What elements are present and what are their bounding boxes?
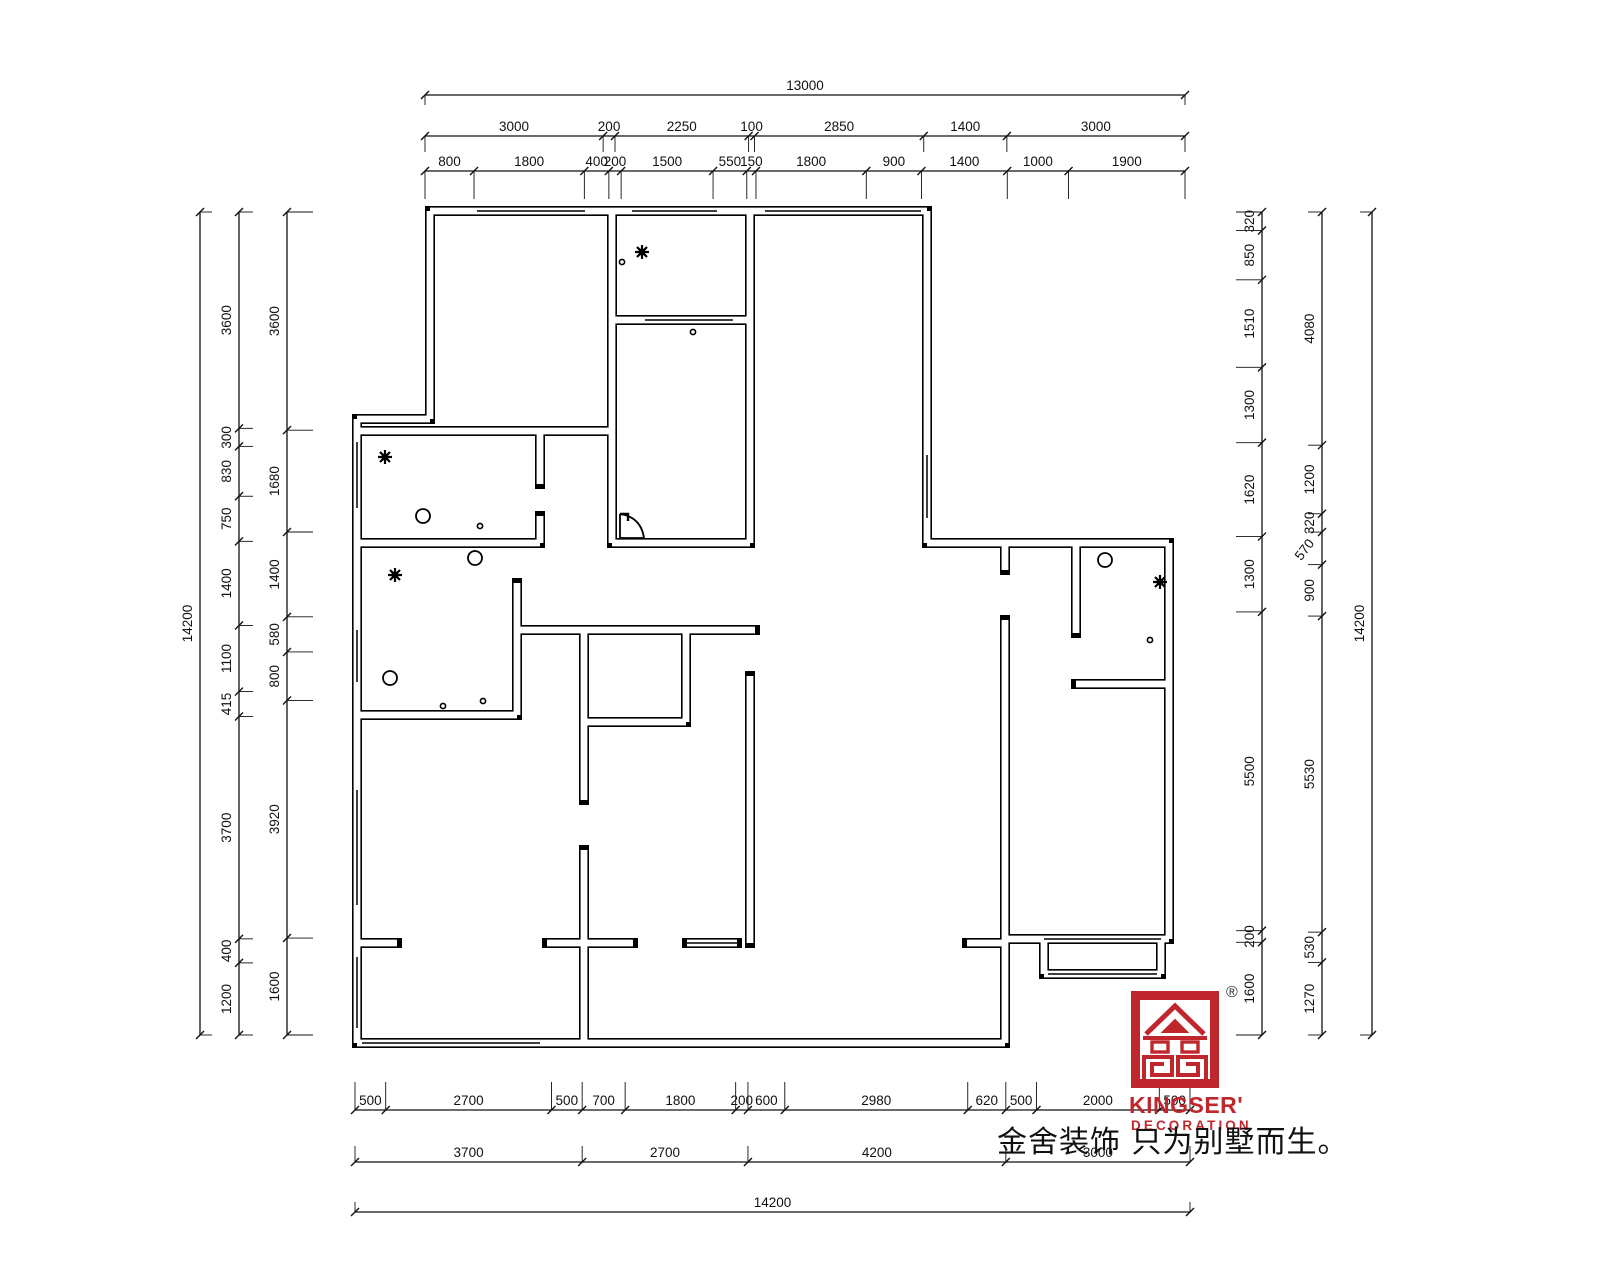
floorplan-sheet: 1300030002002250100285014003000800180040… [0, 0, 1600, 1280]
dim-label: 3600 [219, 305, 234, 335]
dim-label: 1600 [267, 971, 282, 1001]
dim-label: 100 [740, 119, 763, 134]
dim-label: 1300 [1242, 390, 1257, 420]
dim-label: 200 [598, 119, 621, 134]
dim-label: 700 [592, 1093, 615, 1108]
dim-label: 320 [1302, 512, 1317, 535]
logo-brand-text: KINGSER' [1129, 1092, 1243, 1118]
dim-label: 1800 [796, 154, 826, 169]
dim-label: 2850 [824, 119, 854, 134]
corner-shower-icon [620, 514, 644, 538]
dim-label: 1270 [1302, 984, 1317, 1014]
dim-label: 415 [219, 693, 234, 716]
dim-label: 1900 [1112, 154, 1142, 169]
registered-mark: ® [1226, 984, 1238, 1001]
dim-label: 600 [755, 1093, 778, 1108]
walls [357, 211, 1169, 1043]
slogan-text: 金舍装饰 只为别墅而生。 [997, 1125, 1349, 1160]
drain-flower-icon [635, 245, 649, 259]
dim-label: 200 [731, 1093, 754, 1108]
dim-label: 1680 [267, 466, 282, 496]
kingser-logo: ® KINGSER' DECORATION [1129, 984, 1252, 1133]
dim-label: 550 [719, 154, 742, 169]
dim-label: 14200 [1352, 605, 1367, 643]
dim-label: 500 [359, 1093, 382, 1108]
dim-label: 1510 [1242, 309, 1257, 339]
dim-label: 800 [267, 665, 282, 688]
dim-label: 200 [604, 154, 627, 169]
dim-label: 14200 [754, 1195, 792, 1210]
plumbing-fixtures [378, 245, 1167, 709]
drain-flower-icon [388, 568, 402, 582]
dim-label: 530 [1302, 936, 1317, 959]
dim-label: 1000 [1023, 154, 1053, 169]
drain-flower-icon [1153, 575, 1167, 589]
dim-label: 300 [219, 426, 234, 449]
small-drain-icon [440, 259, 1152, 708]
dim-label: 580 [267, 623, 282, 646]
dim-label: 5530 [1302, 759, 1317, 789]
dim-label: 13000 [786, 78, 824, 93]
dim-label: 3700 [219, 813, 234, 843]
dim-label: 2980 [861, 1093, 891, 1108]
dim-label: 200 [1242, 925, 1257, 948]
dim-label: 1600 [1242, 974, 1257, 1004]
dim-label: 320 [1242, 210, 1257, 233]
dim-label: 1400 [219, 568, 234, 598]
dim-label: 570 [1292, 536, 1318, 563]
dim-label: 1620 [1242, 475, 1257, 505]
dim-label: 2700 [454, 1093, 484, 1108]
dim-label: 3000 [499, 119, 529, 134]
dim-label: 1500 [652, 154, 682, 169]
dim-label: 500 [556, 1093, 579, 1108]
dim-label: 830 [219, 460, 234, 483]
dim-label: 1800 [665, 1093, 695, 1108]
dim-label: 1400 [949, 154, 979, 169]
dim-label: 1200 [219, 984, 234, 1014]
dim-label: 900 [883, 154, 906, 169]
dim-label: 4200 [862, 1145, 892, 1160]
dim-label: 3000 [1081, 119, 1111, 134]
dim-label: 1100 [219, 644, 234, 673]
drain-flower-icon [378, 450, 392, 464]
dim-label: 4080 [1302, 314, 1317, 344]
dim-label: 3920 [267, 804, 282, 834]
dim-label: 3600 [267, 306, 282, 336]
dim-label: 14200 [180, 605, 195, 643]
dim-label: 800 [438, 154, 461, 169]
dim-label: 3700 [454, 1145, 484, 1160]
dim-label: 400 [219, 940, 234, 963]
dim-label: 2000 [1083, 1093, 1113, 1108]
dim-label: 1800 [514, 154, 544, 169]
dim-label: 500 [1010, 1093, 1033, 1108]
dim-label: 850 [1242, 244, 1257, 267]
dim-label: 900 [1302, 579, 1317, 602]
dim-label: 1300 [1242, 559, 1257, 589]
dim-label: 5500 [1242, 756, 1257, 786]
dim-label: 2250 [667, 119, 697, 134]
dim-label: 1400 [950, 119, 980, 134]
walls-inner [357, 211, 1169, 1043]
dim-label: 750 [219, 508, 234, 531]
dim-label: 1200 [1302, 464, 1317, 494]
dim-label: 620 [976, 1093, 999, 1108]
dim-label: 1400 [267, 559, 282, 589]
dim-label: 2700 [650, 1145, 680, 1160]
